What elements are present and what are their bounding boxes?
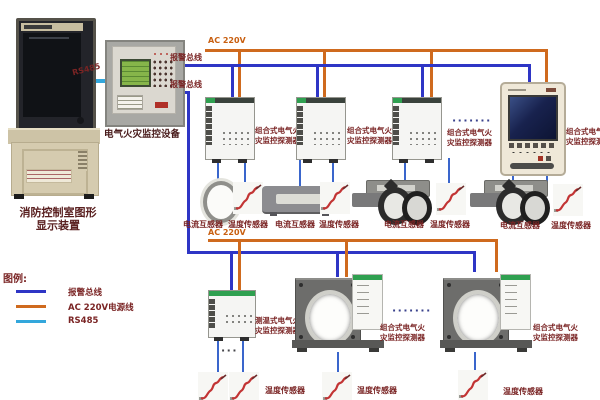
controller-label: 电气火灾监控设备 (96, 126, 188, 140)
sensor-link (474, 352, 476, 370)
label-line2: 灾监控探测器 (447, 138, 497, 148)
temp-sensor-icon (436, 183, 466, 215)
controller-brand-label (155, 102, 168, 108)
temperature-sensor (458, 370, 488, 400)
detector-foot (399, 159, 408, 163)
label-line1: 组合式电气火 (380, 323, 430, 333)
current-transformer-label: 电流互感器 (381, 219, 427, 230)
ct-foot (369, 348, 379, 352)
ct-foot (297, 348, 307, 352)
temperature-sensor-label: 温度传感器 (354, 385, 400, 396)
detector-foot (238, 159, 247, 163)
label-line2: 灾监控探测器 (533, 333, 583, 343)
detector-badge (297, 98, 306, 103)
screw (351, 335, 355, 339)
ac-power-bottom-bus (208, 239, 498, 242)
ac-power-bottom-drop-1 (238, 241, 241, 290)
temperature-sensor (322, 372, 352, 400)
alarm-bus-label-bottom: 报警总线 (170, 79, 206, 90)
alarm-drop-3 (421, 66, 424, 97)
monitor-brand-mark (24, 25, 52, 29)
temperature-sensor-label: 温度传感器 (500, 386, 546, 397)
combined-detector-2 (296, 97, 346, 160)
detector-indicator-grid (312, 130, 340, 145)
continuation-dots-bottom: ······· (392, 304, 432, 317)
label-line1: 组合式电气火 (347, 126, 397, 136)
alarm-bottom-end-drop (473, 251, 476, 272)
combined-detector-display (500, 82, 566, 176)
detector-header (209, 291, 255, 296)
legend-title: 图例: (3, 270, 27, 285)
temperature-sensor-label: 温度传感器 (548, 220, 594, 231)
ac-power-bottom-end-drop (495, 241, 498, 272)
ct-side-panel (352, 274, 383, 330)
detector-foot (212, 159, 221, 163)
alarm-drop-2 (316, 66, 319, 97)
temperature-sensor (229, 372, 259, 400)
legend-row-alarm-bus: 报警总线 (16, 290, 136, 300)
detector-badge (393, 98, 402, 103)
alarm-bottom-drop-1 (230, 253, 233, 290)
screw (299, 335, 303, 339)
temperature-sensor-label: 温度传感器 (316, 219, 362, 230)
temp-sensor-icon (322, 372, 352, 400)
continuation-dots-small: ··· (221, 344, 238, 357)
temp-sensor-icon (233, 182, 263, 214)
monitor (16, 18, 96, 132)
display-logo (546, 88, 556, 92)
combined-detector-display-label: 组合式电气火 灾监控探测器 (566, 127, 600, 146)
temp-sensor-icon (198, 372, 228, 400)
ct-side-panel (500, 274, 531, 330)
trackball (77, 117, 84, 124)
transformer-foot (270, 212, 277, 216)
detector-foot (240, 337, 249, 341)
workstation-label: 消防控制室图形 显示装置 (8, 206, 108, 232)
ct-base (440, 340, 532, 348)
controller-lcd-screen (120, 59, 151, 87)
screw (299, 283, 303, 287)
combined-detector-2-label: 组合式电气火 灾监控探测器 (347, 126, 397, 145)
display-led-row (510, 151, 554, 154)
panel-green-stripe (353, 275, 382, 280)
detector-indicator-grid (221, 130, 249, 145)
display-button-row (509, 143, 555, 148)
legend-label-rs485: RS485 (68, 316, 98, 326)
temp-sensor-icon (553, 184, 583, 216)
detector-foot (303, 159, 312, 163)
workstation-label-line2: 显示装置 (8, 219, 108, 232)
ct-foot (517, 348, 527, 352)
panel-terminals (505, 285, 517, 319)
display-meta-left (508, 89, 526, 91)
detector-indicator-grid (408, 130, 436, 145)
detector-foot (425, 159, 434, 163)
ct-window (453, 290, 503, 346)
label-line2: 灾监控探测器 (347, 136, 397, 146)
sensor-link (299, 158, 301, 188)
ac-power-top-end-drop (545, 49, 548, 83)
cabinet-foot (84, 194, 94, 199)
temp-sensor-icon (229, 372, 259, 400)
temperature-sensor-label: 温度传感器 (427, 219, 473, 230)
controller-led-row (152, 52, 172, 56)
detector-foot (214, 337, 223, 341)
temperature-sensor-label: 温度传感器 (262, 385, 308, 396)
ct-foot (445, 348, 455, 352)
alarm-bus-label-top: 报警总线 (170, 52, 206, 63)
sensor-link (242, 336, 244, 374)
combined-detector-3-label: 组合式电气火 灾监控探测器 (447, 128, 497, 147)
ct-base (292, 340, 384, 348)
current-transformer-label: 电流互感器 (497, 220, 543, 231)
temp-type-detector (208, 290, 256, 338)
screw (447, 283, 451, 287)
display-bottom-bar (510, 163, 554, 169)
cabinet-foot (14, 194, 24, 199)
legend-swatch-rs485 (16, 320, 46, 323)
cabinet-name-plate (26, 169, 72, 183)
temperature-sensor (198, 372, 228, 400)
detector-badge (206, 98, 215, 103)
sensor-link (448, 158, 450, 185)
screen-glare (29, 37, 69, 39)
detector-terminal-strip (209, 298, 215, 328)
legend-row-ac-power: AC 220V电源线 (16, 305, 136, 315)
combined-detector-3 (392, 97, 442, 160)
display-red-mark (538, 156, 543, 161)
legend-swatch-ac-power (16, 305, 46, 308)
legend-label-alarm-bus: 报警总线 (68, 286, 102, 298)
ac-power-drop-2 (323, 51, 326, 97)
legend-row-rs485: RS485 (16, 320, 136, 330)
label-line2: 灾监控探测器 (380, 333, 430, 343)
current-transformer-assembly (352, 178, 438, 218)
screw (499, 335, 503, 339)
display-dark-mark (546, 156, 551, 161)
controller-face (112, 46, 176, 114)
current-transformer-assembly (470, 178, 556, 218)
sensor-link (337, 352, 339, 372)
cabinet-pedestal (11, 142, 99, 196)
current-transformer-label: 电流互感器 (180, 219, 226, 230)
label-line1: 组合式电气火 (447, 128, 497, 138)
transformer-slot (276, 194, 322, 204)
graphic-display-workstation: 消防控制室图形 显示装置 (8, 10, 100, 194)
temp-sensor-icon (458, 370, 488, 400)
continuation-dots-top: ······· (452, 114, 492, 127)
workstation-label-line1: 消防控制室图形 (8, 206, 108, 219)
cabinet-vent (78, 151, 87, 171)
sensor-link (217, 336, 219, 374)
ac-power-top-bus (205, 49, 548, 52)
ct-window (305, 290, 355, 346)
panel-green-stripe (501, 275, 530, 280)
controller-card-slot (117, 95, 143, 110)
combined-detector-large-2-label: 组合式电气火 灾监控探测器 (533, 323, 583, 342)
label-line2: 灾监控探测器 (566, 137, 600, 147)
alarm-top-end-drop (528, 66, 531, 83)
detector-terminal-strip (393, 105, 399, 145)
detector-terminal-strip (206, 105, 212, 145)
panel-terminals (357, 285, 369, 319)
label-line1: 组合式电气火 (566, 127, 600, 137)
detector-indicator-grid (224, 313, 252, 327)
legend-label-ac-power: AC 220V电源线 (68, 301, 134, 313)
temp-sensor-icon (320, 182, 350, 214)
temperature-sensor (436, 183, 466, 215)
temperature-sensor (320, 182, 350, 214)
display-screen (508, 95, 558, 141)
alarm-drop-1 (231, 66, 234, 97)
temperature-sensor (233, 182, 263, 214)
monitor-top-strip (21, 23, 83, 31)
temperature-sensor-label: 温度传感器 (225, 219, 271, 230)
current-transformer-label: 电流互感器 (272, 219, 318, 230)
legend-swatch-alarm-bus (16, 290, 46, 293)
label-line1: 组合式电气火 (533, 323, 583, 333)
combined-detector-large-ct-1 (295, 272, 383, 354)
combined-detector-1 (205, 97, 255, 160)
detector-terminal-strip (297, 105, 303, 145)
ac-power-drop-1 (238, 51, 241, 97)
detector-foot (329, 159, 338, 163)
temperature-sensor (553, 184, 583, 216)
screw (447, 335, 451, 339)
system-topology-diagram: 消防控制室图形 显示装置 RS485 电气火灾监控设备 报警总线 报警总线 AC… (0, 0, 600, 400)
ac-power-drop-3 (430, 51, 433, 97)
ac220v-label-top: AC 220V (208, 36, 246, 45)
combined-detector-large-ct-2 (443, 272, 531, 354)
combined-detector-large-1-label: 组合式电气火 灾监控探测器 (380, 323, 430, 342)
